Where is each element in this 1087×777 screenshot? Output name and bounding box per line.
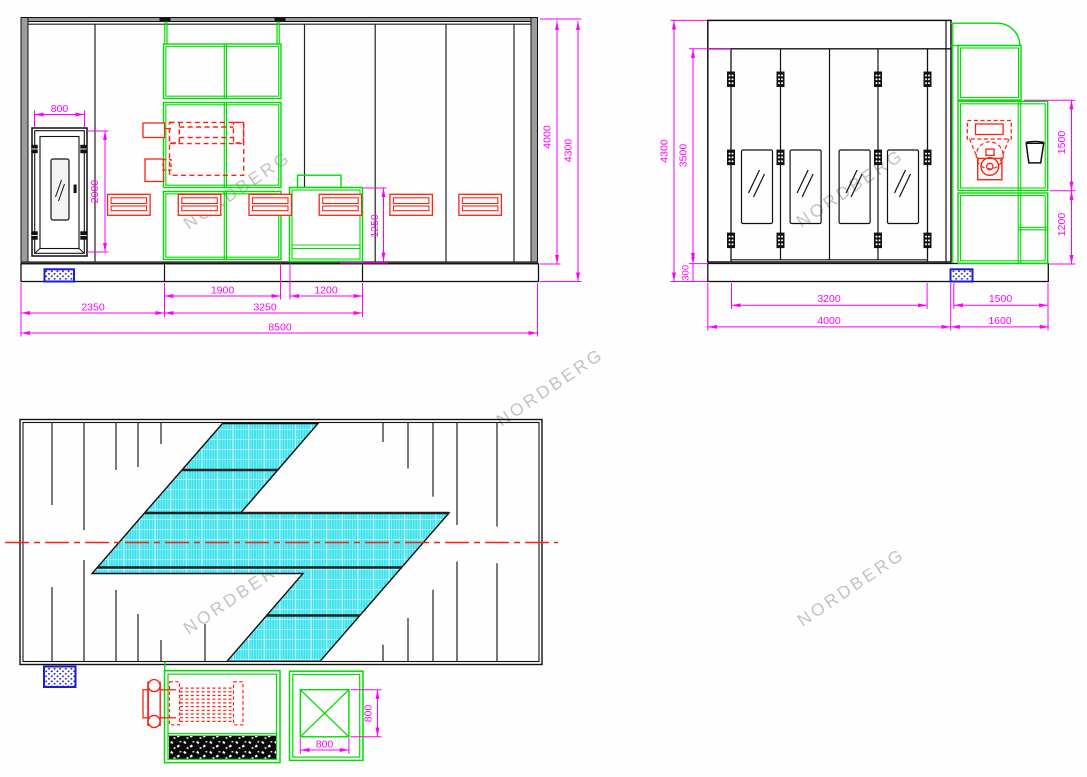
svg-text:3250: 3250 [253,302,277,314]
svg-text:2000: 2000 [89,180,101,204]
svg-text:NORDBERG: NORDBERG [180,147,295,234]
svg-text:NORDBERG: NORDBERG [793,145,908,232]
svg-text:1600: 1600 [988,315,1012,327]
svg-text:1200: 1200 [1056,213,1068,237]
svg-text:800: 800 [51,103,69,115]
svg-text:800: 800 [363,705,375,723]
svg-text:4300: 4300 [563,139,575,163]
svg-text:1900: 1900 [211,285,235,297]
svg-text:3500: 3500 [678,144,690,168]
svg-text:4000: 4000 [817,315,841,327]
svg-text:300: 300 [681,265,692,281]
svg-text:1200: 1200 [314,285,338,297]
svg-text:3200: 3200 [817,293,841,305]
svg-text:NORDBERG: NORDBERG [493,344,608,431]
svg-text:8500: 8500 [268,322,292,334]
svg-text:2350: 2350 [81,302,105,314]
svg-text:4300: 4300 [659,139,671,163]
svg-text:1500: 1500 [989,293,1013,305]
svg-text:NORDBERG: NORDBERG [794,544,909,631]
svg-text:4000: 4000 [542,125,554,149]
svg-text:1250: 1250 [369,214,381,238]
svg-text:800: 800 [316,739,334,751]
svg-text:1500: 1500 [1056,131,1068,155]
